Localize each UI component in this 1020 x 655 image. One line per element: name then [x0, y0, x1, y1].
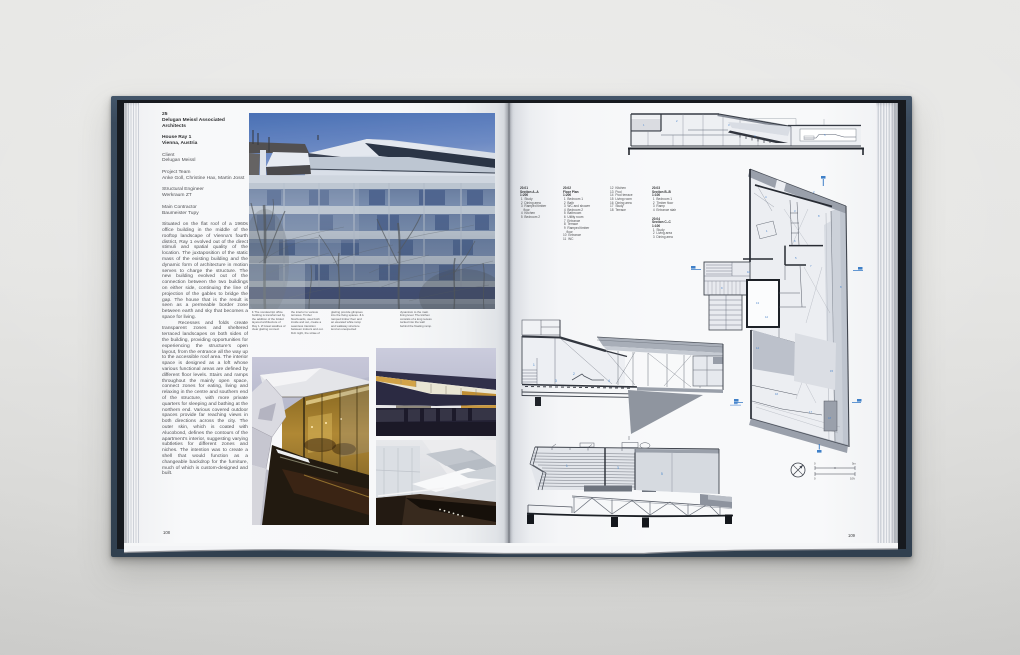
- svg-text:1: 1: [566, 464, 568, 468]
- svg-text:0: 0: [814, 462, 816, 466]
- svg-text:5: 5: [661, 472, 663, 476]
- svg-text:10ft: 10ft: [850, 477, 855, 481]
- svg-text:18: 18: [828, 416, 832, 420]
- svg-text:3: 3: [555, 379, 557, 383]
- svg-text:0: 0: [814, 477, 816, 481]
- svg-text:5m: 5m: [852, 462, 857, 466]
- svg-text:3: 3: [617, 466, 619, 470]
- svg-text:2: 2: [813, 190, 815, 194]
- svg-text:12: 12: [765, 315, 769, 319]
- svg-text:17: 17: [809, 410, 813, 414]
- svg-text:13: 13: [756, 301, 760, 305]
- svg-text:2: 2: [573, 372, 575, 376]
- svg-text:10: 10: [747, 270, 751, 274]
- svg-text:15: 15: [830, 369, 834, 373]
- svg-text:4: 4: [608, 379, 610, 383]
- svg-text:1: 1: [533, 363, 535, 367]
- svg-text:14: 14: [756, 346, 760, 350]
- svg-text:16: 16: [775, 392, 779, 396]
